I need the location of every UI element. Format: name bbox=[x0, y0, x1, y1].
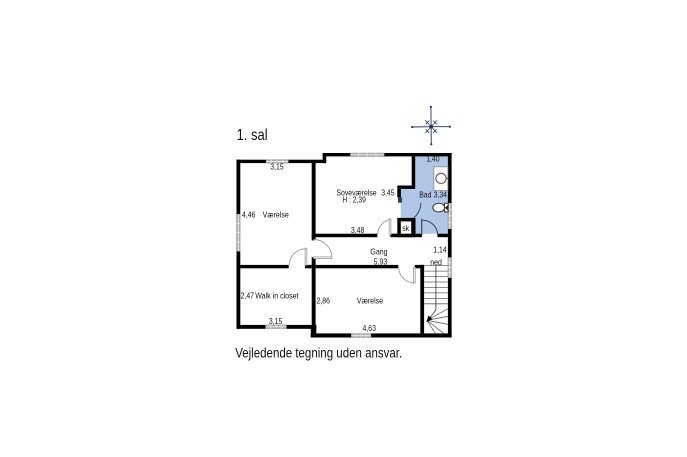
svg-text:3,34: 3,34 bbox=[434, 189, 448, 199]
svg-text:Gang: Gang bbox=[370, 247, 387, 257]
svg-text:ned: ned bbox=[430, 257, 442, 267]
svg-text:Bad: Bad bbox=[419, 189, 431, 199]
svg-text:Walk in closet: Walk in closet bbox=[255, 291, 299, 301]
svg-text:2,86: 2,86 bbox=[317, 296, 331, 306]
svg-text:4,46: 4,46 bbox=[242, 210, 256, 220]
svg-text:3,15: 3,15 bbox=[270, 162, 284, 172]
svg-text:1. sal: 1. sal bbox=[237, 127, 268, 144]
svg-text:Værelse: Værelse bbox=[263, 210, 289, 220]
svg-text:5,93: 5,93 bbox=[374, 257, 388, 267]
svg-text:3,45: 3,45 bbox=[381, 187, 395, 197]
svg-text:1,40: 1,40 bbox=[426, 154, 440, 164]
svg-text:sk: sk bbox=[402, 223, 409, 233]
svg-text:2,47: 2,47 bbox=[241, 291, 255, 301]
svg-text:Værelse: Værelse bbox=[357, 296, 383, 306]
svg-text:3,15: 3,15 bbox=[269, 316, 283, 326]
svg-text:Vejledende tegning uden ansvar: Vejledende tegning uden ansvar. bbox=[235, 345, 402, 360]
svg-text:H : 2,39: H : 2,39 bbox=[342, 194, 366, 204]
svg-text:4,63: 4,63 bbox=[363, 323, 377, 333]
svg-text:1,14: 1,14 bbox=[433, 245, 447, 255]
svg-text:3,48: 3,48 bbox=[351, 225, 365, 235]
